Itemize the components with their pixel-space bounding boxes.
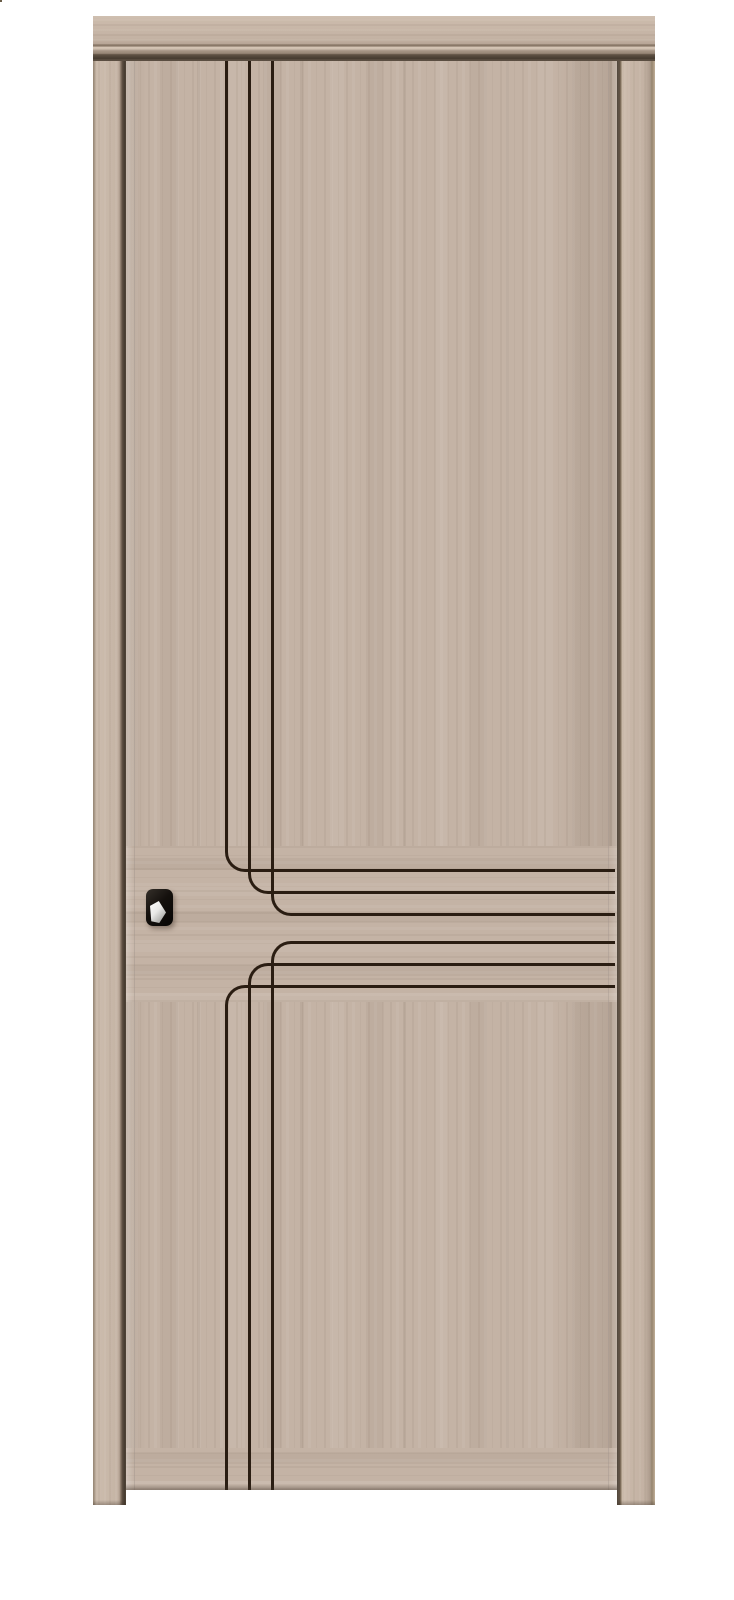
door-leaf [126,61,617,1490]
leaf-bottom-shadow [126,1484,617,1490]
frame-jamb-left [93,16,126,1505]
groove-line-bottom-3 [225,985,615,1490]
lock-cylinder-gold-cap [0,0,2,2]
door-product-photo [0,0,734,1600]
leaf-edge-left-highlight [126,61,135,1490]
groove-line-top-3 [271,61,615,916]
frame-head [93,16,655,61]
frame-jamb-right [617,16,655,1505]
